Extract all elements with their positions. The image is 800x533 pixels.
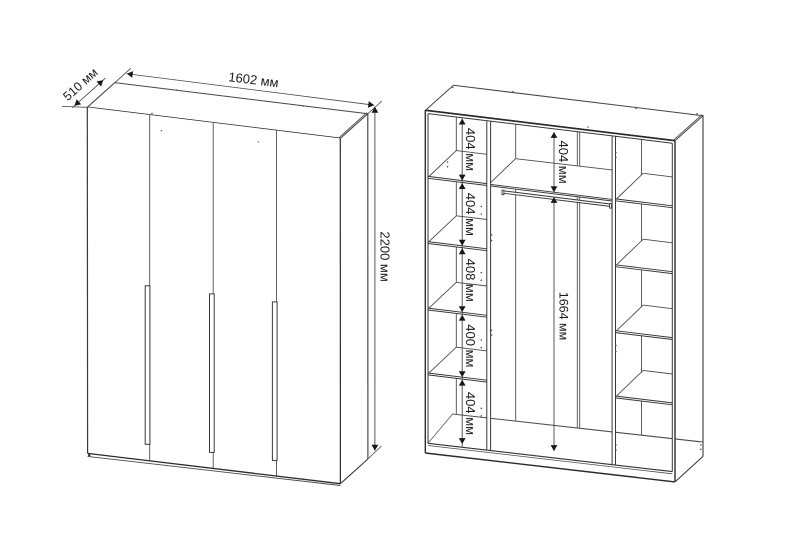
svg-text:408 мм: 408 мм bbox=[463, 259, 478, 302]
svg-text:404 мм: 404 мм bbox=[463, 128, 478, 171]
svg-text:1664 мм: 1664 мм bbox=[556, 292, 570, 340]
svg-text:404 мм: 404 мм bbox=[463, 193, 478, 236]
svg-text:404 мм: 404 мм bbox=[556, 141, 571, 184]
svg-text:2200 мм: 2200 мм bbox=[377, 231, 392, 281]
svg-text:404 мм: 404 мм bbox=[463, 392, 478, 435]
svg-text:400 мм: 400 мм bbox=[463, 324, 478, 367]
